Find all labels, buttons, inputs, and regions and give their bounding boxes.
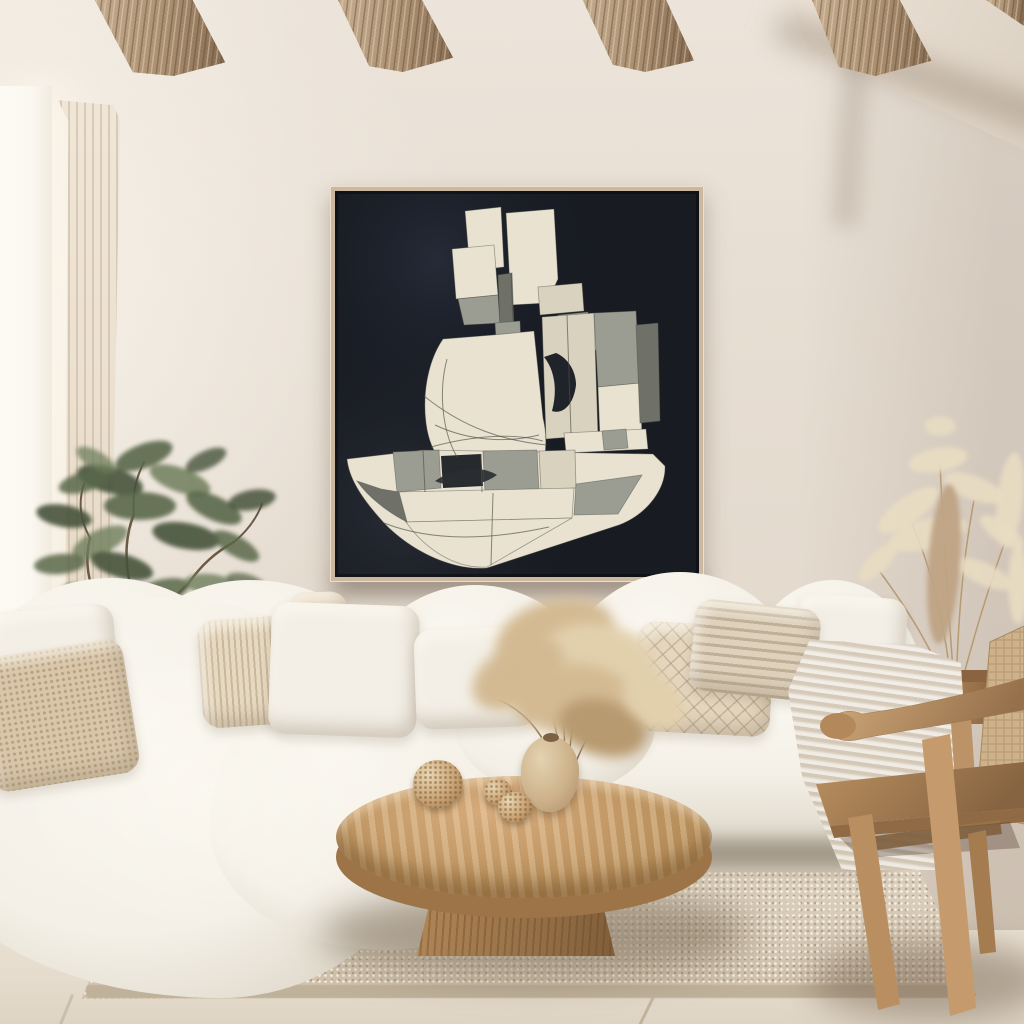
armrest-knob (820, 713, 856, 739)
living-room-photo (0, 0, 1024, 1024)
white-pillow (268, 601, 421, 738)
boucle-pillow (0, 637, 142, 794)
vase-mouth (543, 733, 559, 742)
knot-ball-decor (498, 792, 532, 822)
teak-armchair (800, 612, 1024, 1024)
abstract-painting (330, 186, 704, 582)
knot-ball-decor (413, 760, 463, 808)
abstract-painting-canvas (335, 191, 699, 577)
